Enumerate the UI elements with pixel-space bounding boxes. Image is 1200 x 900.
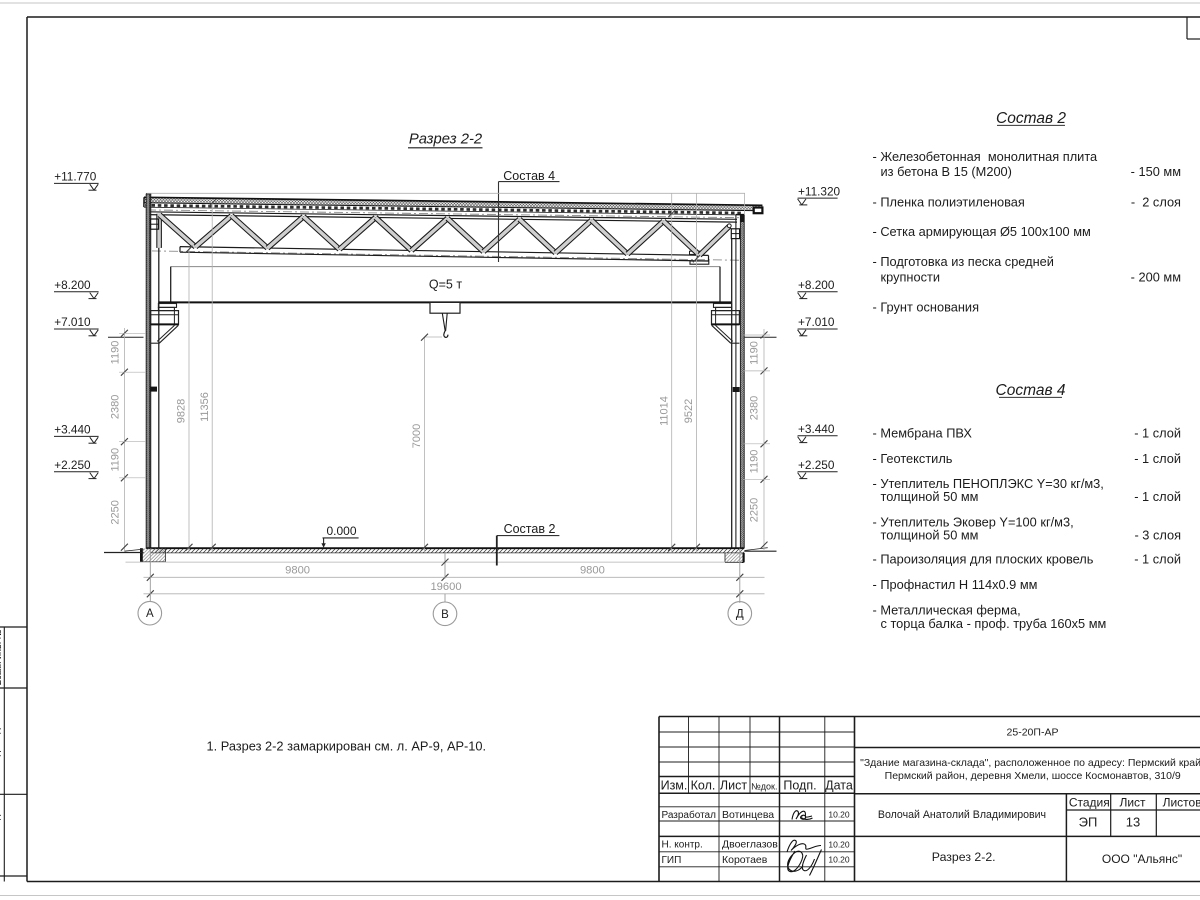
svg-text:Листов: Листов bbox=[1163, 796, 1200, 810]
svg-text:Разрез 2-2.: Разрез 2-2. bbox=[932, 850, 996, 864]
svg-text:Разработал: Разработал bbox=[662, 809, 717, 821]
svg-text:1190: 1190 bbox=[748, 341, 760, 365]
svg-text:- Сетка армирующая Ø5 100x100: - Сетка армирующая Ø5 100x100 мм bbox=[873, 224, 1091, 239]
svg-text:Коротаев: Коротаев bbox=[722, 854, 768, 866]
svg-text:- Мембрана ПВХ: - Мембрана ПВХ bbox=[873, 426, 973, 441]
svg-text:1190: 1190 bbox=[110, 448, 122, 472]
svg-text:+3.440: +3.440 bbox=[54, 423, 91, 437]
svg-text:№док.: №док. bbox=[751, 781, 777, 791]
svg-text:13: 13 bbox=[1126, 815, 1140, 830]
svg-text:Лист: Лист bbox=[720, 779, 747, 793]
svg-text:2250: 2250 bbox=[110, 500, 122, 524]
svg-text:+11.320: +11.320 bbox=[798, 184, 841, 198]
svg-text:7000: 7000 bbox=[411, 424, 423, 448]
svg-text:- 1 слой: - 1 слой bbox=[1134, 489, 1181, 504]
svg-text:Состав 2: Состав 2 bbox=[996, 110, 1066, 127]
svg-text:- 1 слой: - 1 слой bbox=[1134, 451, 1181, 466]
svg-text:ООО "Альянс": ООО "Альянс" bbox=[1102, 852, 1182, 866]
svg-text:+3.440: +3.440 bbox=[798, 422, 835, 436]
svg-text:- Грунт основания: - Грунт основания bbox=[873, 299, 980, 314]
svg-text:2380: 2380 bbox=[748, 396, 760, 420]
svg-text:Вотинцева: Вотинцева bbox=[722, 809, 774, 821]
svg-text:- 200 мм: - 200 мм bbox=[1131, 270, 1181, 285]
svg-text:19600: 19600 bbox=[430, 581, 461, 593]
svg-text:толщиной 50 мм: толщиной 50 мм bbox=[881, 527, 979, 542]
svg-text:9800: 9800 bbox=[580, 565, 605, 577]
svg-text:Лист: Лист bbox=[1119, 796, 1146, 810]
svg-text:Пермский район, деревня Хмели,: Пермский район, деревня Хмели, шоссе Кос… bbox=[885, 770, 1181, 782]
svg-text:ЭП: ЭП bbox=[1079, 815, 1098, 830]
svg-text:В: В bbox=[441, 609, 449, 621]
svg-text:Q=5 т: Q=5 т bbox=[429, 278, 462, 292]
svg-text:1190: 1190 bbox=[110, 341, 122, 365]
svg-text:Состав 2: Состав 2 bbox=[504, 522, 556, 536]
svg-text:10.20: 10.20 bbox=[828, 839, 850, 849]
svg-text:11014: 11014 bbox=[658, 396, 670, 426]
svg-text:11356: 11356 bbox=[199, 392, 211, 422]
svg-text:А: А bbox=[146, 608, 154, 620]
svg-text:10.20: 10.20 bbox=[828, 854, 850, 864]
svg-text:Дата: Дата bbox=[825, 779, 853, 793]
svg-text:с торца балка - проф. труба 16: с торца балка - проф. труба 160x5 мм bbox=[881, 616, 1107, 631]
svg-text:2380: 2380 bbox=[110, 395, 122, 419]
svg-text:ГИП: ГИП bbox=[662, 855, 682, 866]
svg-text:Стадия: Стадия bbox=[1069, 796, 1110, 810]
svg-text:- 150 мм: - 150 мм bbox=[1131, 164, 1181, 179]
svg-text:из бетона В 15 (М200): из бетона В 15 (М200) bbox=[881, 164, 1012, 179]
svg-text:- Пароизоляция для плоских кро: - Пароизоляция для плоских кровель bbox=[873, 552, 1094, 567]
svg-text:+7.010: +7.010 bbox=[798, 315, 835, 329]
svg-text:- 1 слой: - 1 слой bbox=[1134, 426, 1181, 441]
svg-text:Кол.: Кол. bbox=[691, 779, 716, 793]
svg-text:крупности: крупности bbox=[881, 270, 941, 285]
svg-text:9522: 9522 bbox=[683, 399, 695, 423]
svg-text:- 2 слоя: - 2 слоя bbox=[1131, 195, 1181, 210]
svg-text:Состав 4: Состав 4 bbox=[996, 382, 1066, 399]
svg-text:Двоеглазов: Двоеглазов bbox=[722, 839, 778, 851]
svg-text:- Геотекстиль: - Геотекстиль bbox=[873, 451, 953, 466]
svg-text:Инв. № подл.: Инв. № подл. bbox=[0, 807, 1, 863]
svg-text:+8.200: +8.200 bbox=[54, 278, 91, 292]
svg-text:Н. контр.: Н. контр. bbox=[662, 840, 703, 851]
svg-text:25-20П-АР: 25-20П-АР bbox=[1007, 727, 1059, 739]
svg-text:Подп.: Подп. bbox=[783, 779, 816, 793]
svg-text:+2.250: +2.250 bbox=[54, 458, 91, 472]
svg-text:- Подготовка из песка средней: - Подготовка из песка средней bbox=[873, 254, 1054, 269]
svg-text:10.20: 10.20 bbox=[828, 810, 850, 820]
svg-text:толщиной 50 мм: толщиной 50 мм bbox=[881, 489, 979, 504]
svg-text:Изм.: Изм. bbox=[661, 779, 688, 793]
svg-text:- 1 слой: - 1 слой bbox=[1134, 552, 1181, 567]
svg-text:"Здание магазина-склада", расп: "Здание магазина-склада", расположенное … bbox=[860, 757, 1200, 769]
svg-text:Подп. и дата: Подп. и дата bbox=[0, 714, 1, 767]
svg-text:1190: 1190 bbox=[748, 450, 760, 474]
svg-text:+2.250: +2.250 bbox=[798, 458, 835, 472]
svg-text:+8.200: +8.200 bbox=[798, 278, 835, 292]
svg-text:2250: 2250 bbox=[748, 498, 760, 522]
svg-text:- 3 слоя: - 3 слоя bbox=[1134, 527, 1181, 542]
svg-text:9828: 9828 bbox=[176, 399, 188, 423]
svg-text:- Пленка полиэтиленовая: - Пленка полиэтиленовая bbox=[873, 195, 1025, 210]
svg-text:+7.010: +7.010 bbox=[54, 315, 91, 329]
svg-text:- Железобетонная монолитная п: - Железобетонная монолитная плита bbox=[873, 149, 1099, 164]
svg-text:0.000: 0.000 bbox=[326, 524, 356, 538]
svg-text:- Профнастил Н 114x0.9 мм: - Профнастил Н 114x0.9 мм bbox=[873, 577, 1038, 592]
svg-text:+11.770: +11.770 bbox=[54, 170, 97, 184]
svg-text:Разрез 2-2: Разрез 2-2 bbox=[409, 132, 483, 148]
svg-text:Взам. инв. №: Взам. инв. № bbox=[0, 629, 3, 685]
svg-text:9800: 9800 bbox=[285, 565, 310, 577]
svg-text:Волочай Анатолий Владимирович: Волочай Анатолий Владимирович bbox=[878, 809, 1046, 821]
svg-text:1. Разрез 2-2 замаркирован см.: 1. Разрез 2-2 замаркирован см. л. АР-9, … bbox=[207, 738, 487, 753]
svg-text:Д: Д bbox=[736, 608, 744, 620]
